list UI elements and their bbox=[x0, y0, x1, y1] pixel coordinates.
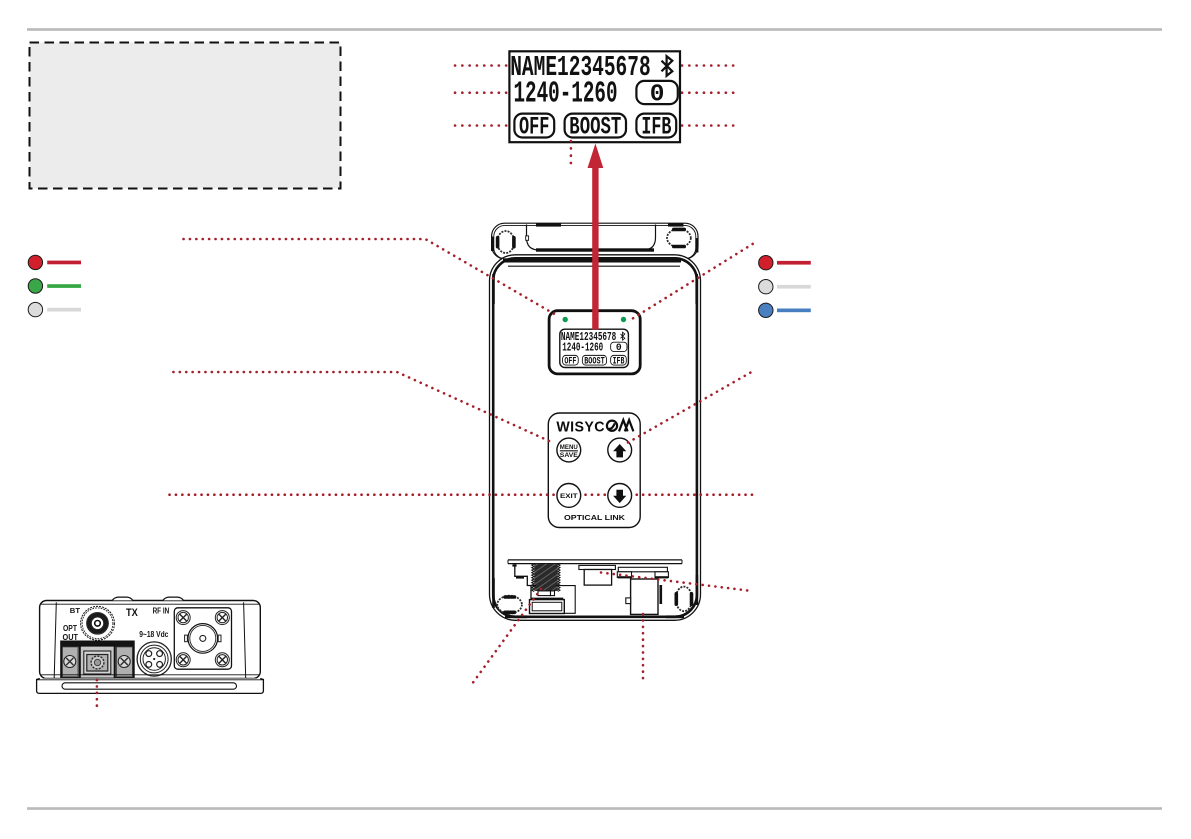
svg-text:RF IN: RF IN bbox=[153, 607, 170, 616]
svg-text:OUT: OUT bbox=[63, 632, 79, 642]
svg-text:0: 0 bbox=[650, 81, 665, 108]
svg-text:BT: BT bbox=[70, 606, 81, 615]
svg-text:SAVE: SAVE bbox=[560, 452, 579, 459]
svg-text:TX: TX bbox=[126, 607, 138, 619]
svg-text:MENU: MENU bbox=[560, 444, 578, 451]
svg-text:9~18 Vdc: 9~18 Vdc bbox=[139, 629, 168, 639]
svg-text:OFF: OFF bbox=[519, 113, 550, 142]
svg-text:EXIT: EXIT bbox=[560, 493, 578, 500]
svg-text:WISYC: WISYC bbox=[556, 419, 605, 435]
svg-text:IFB: IFB bbox=[641, 113, 671, 142]
svg-text:OPTICAL LINK: OPTICAL LINK bbox=[564, 513, 626, 522]
svg-text:1240-1260: 1240-1260 bbox=[514, 78, 618, 112]
svg-text:BOOST: BOOST bbox=[569, 113, 621, 142]
